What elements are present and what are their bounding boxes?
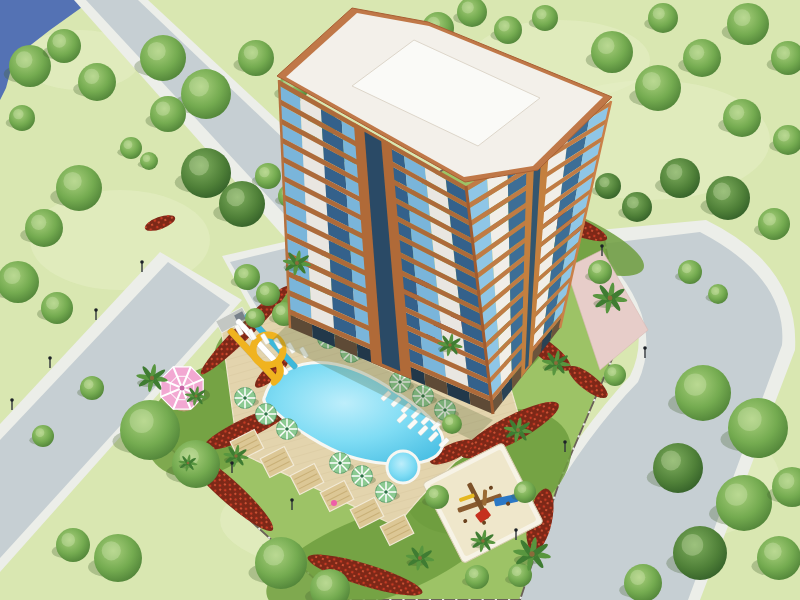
tree-highlight	[189, 156, 209, 176]
tree-crown	[706, 176, 750, 220]
tree-crown	[80, 376, 104, 400]
tree-crown	[219, 181, 265, 227]
palm-trunk	[418, 556, 422, 560]
tree-crown	[678, 260, 702, 284]
tree-highlight	[156, 101, 170, 115]
tree-highlight	[226, 188, 244, 206]
tree-highlight	[102, 541, 121, 560]
palm-trunk	[234, 454, 238, 458]
tree-highlight	[642, 72, 660, 90]
tree-highlight	[764, 543, 782, 561]
tree-crown	[25, 209, 63, 247]
tree-highlight	[13, 109, 23, 119]
tree-highlight	[31, 215, 46, 230]
palm-trunk	[194, 394, 197, 397]
tree-highlight	[729, 105, 744, 120]
tree-crown	[47, 29, 81, 63]
tree-highlight	[61, 533, 75, 547]
tree-highlight	[429, 489, 439, 499]
tree-highlight	[512, 567, 522, 577]
tree-highlight	[259, 167, 269, 177]
tree-highlight	[52, 34, 66, 48]
tree-crown	[150, 96, 186, 132]
tree-crown	[181, 69, 231, 119]
tree-crown	[140, 152, 158, 170]
tree-highlight	[260, 286, 270, 296]
palm-trunk	[448, 343, 452, 347]
tree-highlight	[661, 451, 681, 471]
tree-highlight	[498, 20, 509, 31]
tree-crown	[140, 35, 186, 81]
tree-highlight	[276, 306, 286, 316]
architectural-render	[0, 0, 800, 600]
tree-crown	[653, 443, 703, 493]
tree-highlight	[776, 46, 790, 60]
tree-crown	[716, 475, 772, 531]
tree-crown	[635, 65, 681, 111]
tree-crown	[683, 39, 721, 77]
tree-crown	[708, 284, 728, 304]
tree-crown	[425, 485, 449, 509]
tree-highlight	[725, 483, 747, 505]
play-equipment	[482, 490, 487, 506]
tree-highlight	[689, 45, 704, 60]
tree-crown	[622, 192, 652, 222]
kids-pool	[387, 451, 419, 483]
tree-crown	[514, 481, 536, 503]
tree-crown	[673, 526, 727, 580]
tree-crown	[9, 105, 35, 131]
tree-crown	[494, 16, 522, 44]
tree-crown	[588, 260, 612, 284]
tree-crown	[256, 282, 280, 306]
tree-highlight	[143, 155, 150, 162]
tree-crown	[234, 264, 260, 290]
tree-crown	[255, 163, 281, 189]
tree-highlight	[734, 9, 751, 26]
tree-crown	[675, 365, 731, 421]
tree-highlight	[682, 534, 704, 556]
tree-highlight	[445, 417, 453, 425]
palm-trunk	[516, 428, 520, 432]
tree-highlight	[536, 9, 546, 19]
tree-highlight	[244, 45, 258, 59]
tree-highlight	[124, 140, 133, 149]
tree-highlight	[4, 267, 21, 284]
tree-highlight	[248, 311, 256, 319]
tree-crown	[255, 537, 307, 589]
tree-crown	[245, 308, 265, 328]
tree-crown	[604, 364, 626, 386]
tree-highlight	[469, 569, 479, 579]
tree-crown	[56, 528, 90, 562]
tree-highlight	[711, 287, 719, 295]
tree-highlight	[627, 197, 639, 209]
tree-highlight	[778, 473, 794, 489]
tree-highlight	[653, 8, 665, 20]
tree-crown	[727, 3, 769, 45]
tree-highlight	[316, 575, 332, 591]
tree-crown	[78, 63, 116, 101]
tree-highlight	[684, 373, 706, 395]
palm-trunk	[295, 261, 299, 265]
tree-highlight	[46, 297, 59, 310]
tree-highlight	[238, 268, 248, 278]
tree-crown	[758, 208, 790, 240]
tree-highlight	[263, 545, 284, 566]
tree-crown	[591, 31, 633, 73]
tree-highlight	[63, 172, 81, 190]
tree-crown	[723, 99, 761, 137]
tree-highlight	[36, 428, 45, 437]
palm-trunk	[187, 462, 190, 465]
palm-trunk	[608, 296, 613, 301]
tree-crown	[442, 414, 462, 434]
tree-highlight	[189, 77, 209, 97]
tree-crown	[660, 158, 700, 198]
tree-crown	[120, 137, 142, 159]
tree-highlight	[84, 69, 99, 84]
aerial-view-apartment-complex	[0, 0, 800, 600]
tree-highlight	[462, 2, 474, 14]
tree-crown	[728, 398, 788, 458]
tree-highlight	[599, 177, 609, 187]
tree-crown	[120, 400, 180, 460]
tree-highlight	[84, 380, 94, 390]
tree-highlight	[608, 367, 617, 376]
palm-trunk	[481, 539, 485, 543]
tree-highlight	[592, 264, 602, 274]
tree-highlight	[630, 570, 645, 585]
palm-trunk	[150, 376, 154, 380]
tree-highlight	[666, 164, 682, 180]
tree-crown	[238, 40, 274, 76]
tree-crown	[595, 173, 621, 199]
tree-crown	[94, 534, 142, 582]
palm-trunk	[554, 361, 558, 365]
tree-crown	[41, 292, 73, 324]
tree-crown	[56, 165, 102, 211]
tree-crown	[532, 5, 558, 31]
tree-crown	[648, 3, 678, 33]
tree-highlight	[518, 484, 527, 493]
tree-highlight	[713, 183, 731, 201]
tree-highlight	[682, 264, 692, 274]
tree-highlight	[738, 407, 762, 431]
pink-sign	[331, 500, 337, 506]
tree-highlight	[778, 130, 790, 142]
tree-highlight	[598, 37, 615, 54]
palm-trunk	[529, 551, 534, 556]
tree-highlight	[130, 409, 154, 433]
tree-highlight	[763, 213, 776, 226]
tree-highlight	[147, 42, 165, 60]
tree-crown	[32, 425, 54, 447]
tree-crown	[465, 565, 489, 589]
tree-highlight	[16, 51, 33, 68]
